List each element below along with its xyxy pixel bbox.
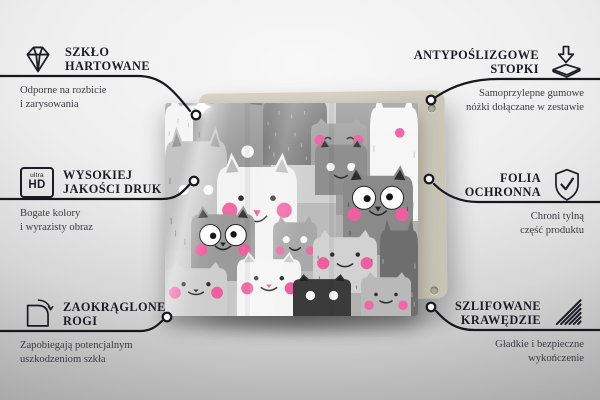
feature-anti-slip-feet: ANTYPOŚLIZGOWE STOPKI Samoprzylepne gumo… (410, 45, 600, 115)
feature-subtitle-line: nóżki dołączane w zestawie (410, 101, 584, 115)
shield-check-icon (550, 167, 584, 203)
screw-hole-bottom-right (430, 286, 438, 294)
feature-subtitle-line: i zarysowania (20, 98, 178, 112)
feature-title: SZKŁO HARTOWANE (65, 45, 150, 74)
feature-title-line: ZAOKRĄGLONE (63, 300, 166, 315)
feature-tempered-glass: SZKŁO HARTOWANE Odporne na rozbicie i za… (0, 42, 178, 112)
feature-title: SZLIFOWANE KRAWĘDZIE (455, 299, 541, 328)
rounded-corner-icon (20, 297, 54, 331)
feature-subtitle-line: część produktu (410, 224, 584, 238)
feature-title-line: SZLIFOWANE (455, 299, 541, 314)
feature-title: WYSOKIEJ JAKOŚCI DRUK (63, 168, 162, 197)
feature-subtitle-line: Zapobiegają potencjalnym (20, 339, 178, 353)
feature-protective-foil: FOLIA OCHRONNA Chroni tylną część produk… (410, 168, 600, 238)
feature-polished-edges: SZLIFOWANE KRAWĘDZIE Gładkie i bezpieczn… (410, 296, 600, 366)
feature-subtitle-line: Odporne na rozbicie (20, 84, 178, 98)
feature-header: SZLIFOWANE KRAWĘDZIE (410, 296, 600, 330)
feature-subtitle-line: uszkodzeniom szkła (20, 353, 178, 367)
feature-header: ZAOKRĄGLONE ROGI (0, 297, 178, 331)
feature-print-quality: ultra HD WYSOKIEJ JAKOŚCI DRUK Bogate ko… (0, 165, 178, 235)
diamond-icon (20, 43, 56, 75)
ultra-hd-label-bottom: HD (28, 180, 45, 192)
glass-board-product: ✦ (165, 103, 418, 316)
feature-title-line: OCHRONNA (465, 185, 541, 200)
feature-title-line: KRAWĘDZIE (461, 313, 541, 328)
feature-title: FOLIA OCHRONNA (465, 171, 541, 200)
feature-title-line: WYSOKIEJ (63, 168, 162, 183)
feature-subtitle-line: Chroni tylną (410, 210, 584, 224)
feature-subtitle-line: Samoprzylepne gumowe (410, 87, 584, 101)
feature-title-line: JAKOŚCI DRUK (63, 182, 162, 197)
feature-subtitle: Odporne na rozbicie i zarysowania (0, 84, 178, 112)
feature-subtitle-line: Gładkie i bezpieczne (410, 338, 584, 352)
feature-subtitle-line: i wyrazisty obraz (20, 221, 178, 235)
polished-edges-icon (550, 296, 584, 330)
feature-subtitle: Chroni tylną część produktu (410, 210, 600, 238)
cat-pattern-art (165, 103, 418, 316)
feature-subtitle: Bogate kolory i wyrazisty obraz (0, 207, 178, 235)
feature-title-line: STOPKI (490, 62, 539, 77)
feature-header: ultra HD WYSOKIEJ JAKOŚCI DRUK (0, 165, 178, 199)
feature-title-line: ROGI (63, 314, 166, 329)
feature-header: FOLIA OCHRONNA (410, 168, 600, 202)
anti-slip-feet-icon (548, 44, 584, 80)
feature-title: ZAOKRĄGLONE ROGI (63, 300, 166, 329)
feature-title-line: FOLIA (500, 171, 541, 186)
feature-subtitle: Samoprzylepne gumowe nóżki dołączane w z… (410, 87, 600, 115)
feature-header: ANTYPOŚLIZGOWE STOPKI (410, 45, 600, 79)
feature-title-line: SZKŁO (65, 45, 150, 60)
feature-title-line: HARTOWANE (65, 59, 150, 74)
feature-subtitle: Gładkie i bezpieczne wykończenie (410, 338, 600, 366)
feature-header: SZKŁO HARTOWANE (0, 42, 178, 76)
feature-subtitle: Zapobiegają potencjalnym uszkodzeniom sz… (0, 339, 178, 367)
feature-subtitle-line: Bogate kolory (20, 207, 178, 221)
ultra-hd-icon: ultra HD (20, 167, 54, 198)
feature-rounded-corners: ZAOKRĄGLONE ROGI Zapobiegają potencjalny… (0, 297, 178, 367)
feature-subtitle-line: wykończenie (410, 352, 584, 366)
feature-title-line: ANTYPOŚLIZGOWE (414, 48, 539, 63)
feature-title: ANTYPOŚLIZGOWE STOPKI (414, 48, 539, 77)
